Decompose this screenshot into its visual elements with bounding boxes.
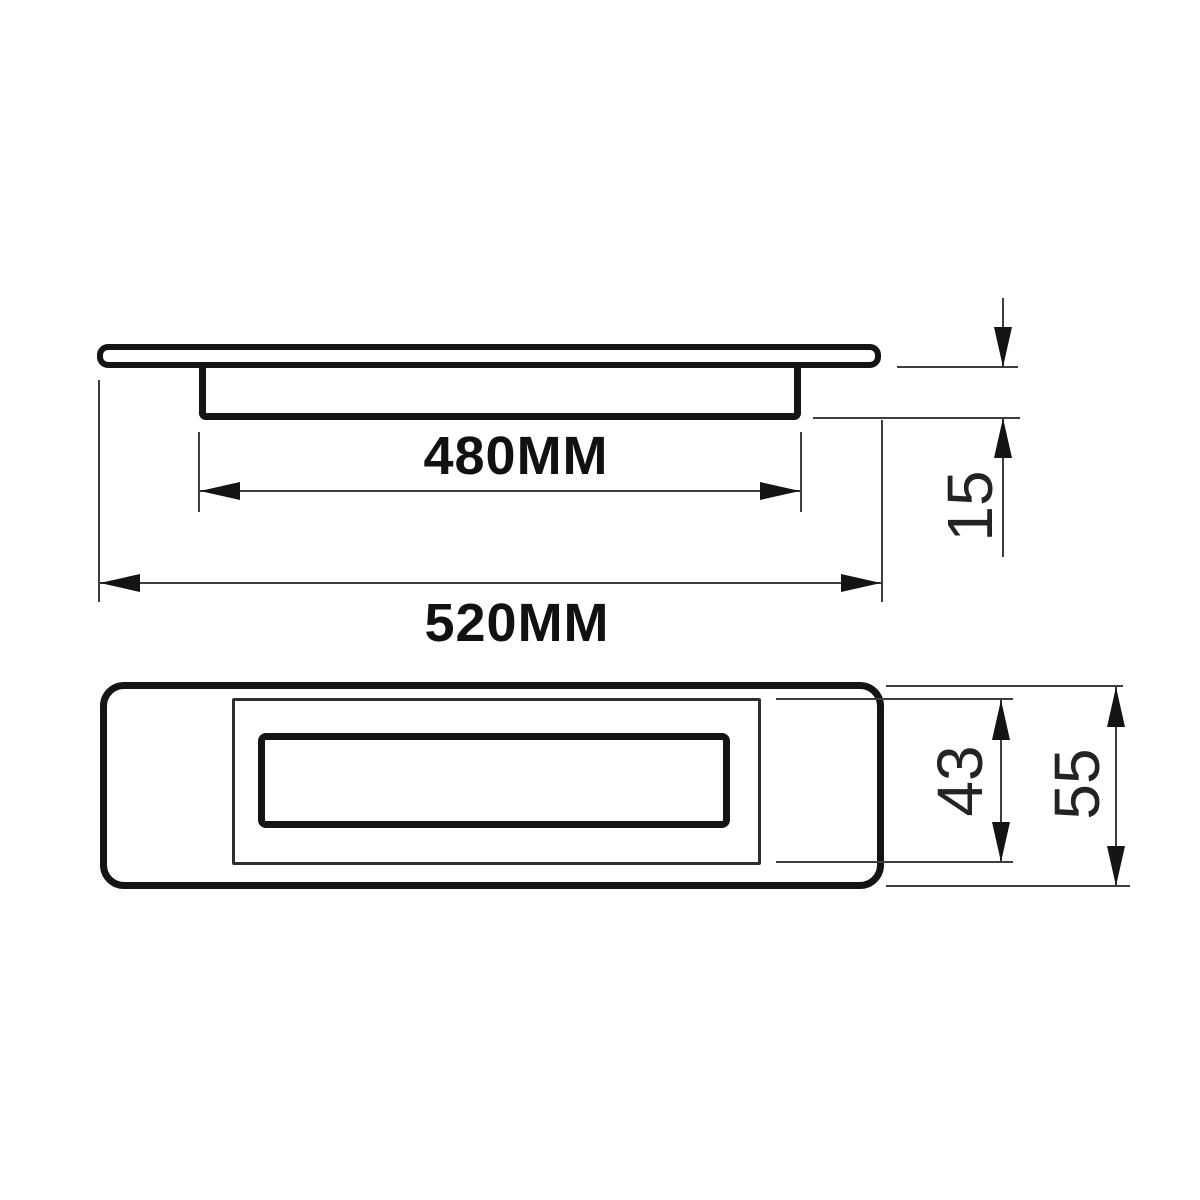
dimension-label-43: 43 bbox=[928, 721, 992, 841]
extension-line-55-bottom bbox=[886, 885, 1130, 887]
extension-line-43-bottom bbox=[776, 861, 1013, 863]
arrowhead-55-down bbox=[1107, 846, 1125, 886]
drawing-canvas: 480MM 520MM 15 43 bbox=[0, 0, 1200, 1200]
front-view: 43 55 bbox=[0, 0, 1200, 1200]
front-inner-pocket bbox=[258, 733, 730, 828]
arrowhead-43-up bbox=[992, 700, 1010, 740]
dimension-label-55: 55 bbox=[1045, 724, 1109, 844]
extension-line-43-top bbox=[776, 698, 1013, 700]
extension-line-55-top bbox=[886, 685, 1123, 687]
arrowhead-55-up bbox=[1107, 687, 1125, 727]
arrowhead-43-down bbox=[992, 822, 1010, 862]
